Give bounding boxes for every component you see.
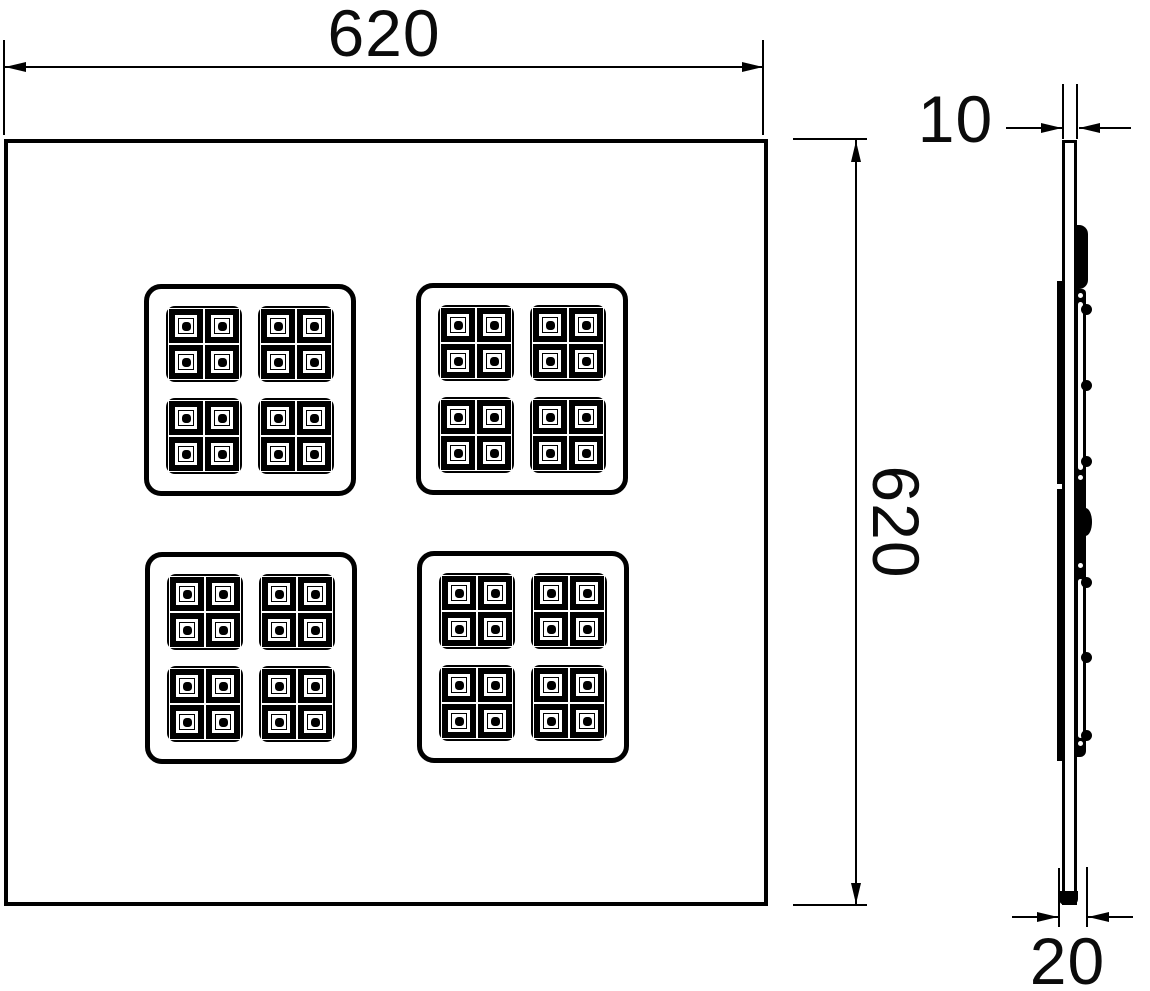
led-package <box>169 576 205 612</box>
dim-arrow-up <box>851 141 861 162</box>
led-chip <box>582 449 591 458</box>
led-package <box>532 307 568 343</box>
led-cell-frame <box>542 353 558 369</box>
led-cell-frame <box>543 585 559 601</box>
clip-bump <box>1081 730 1092 741</box>
led-board-layer-lower <box>1057 489 1063 761</box>
led-chip <box>582 321 591 330</box>
led-package <box>260 436 296 472</box>
led-package <box>533 575 569 611</box>
led-cell-frame <box>306 318 322 334</box>
led-cell <box>212 619 234 641</box>
led-cell-frame <box>450 353 466 369</box>
led-cell <box>267 407 289 429</box>
led-chip <box>491 681 500 690</box>
led-cluster <box>416 283 628 495</box>
led-cell-frame <box>178 318 194 334</box>
led-chip <box>547 589 556 598</box>
technical-drawing: 620 620 10 20 <box>0 0 1150 991</box>
led-module <box>166 398 242 474</box>
led-cell <box>448 618 470 640</box>
led-package <box>205 668 241 704</box>
led-cell <box>539 442 561 464</box>
led-package <box>205 704 241 740</box>
led-module <box>530 305 606 381</box>
led-cell <box>483 350 505 372</box>
led-cell-frame <box>178 446 194 462</box>
width-dimension-label: 620 <box>4 0 764 66</box>
led-package <box>261 612 297 648</box>
led-cell <box>175 351 197 373</box>
led-package <box>204 400 240 436</box>
led-cell <box>576 710 598 732</box>
led-package <box>569 667 605 703</box>
led-cell-frame <box>543 621 559 637</box>
led-cell-frame <box>578 317 594 333</box>
led-chip <box>547 717 556 726</box>
clip-bump <box>1081 652 1092 663</box>
led-cell-frame <box>487 621 503 637</box>
led-package <box>297 668 333 704</box>
led-package <box>533 703 569 739</box>
led-cell-frame <box>543 713 559 729</box>
led-chip <box>311 718 320 727</box>
led-package <box>261 668 297 704</box>
led-package <box>476 343 512 379</box>
led-cell <box>303 351 325 373</box>
led-cell-frame <box>486 317 502 333</box>
led-cell <box>212 583 234 605</box>
led-chip <box>310 450 319 459</box>
led-chip <box>454 321 463 330</box>
led-package <box>260 344 296 380</box>
led-chip <box>183 626 192 635</box>
led-package <box>440 435 476 471</box>
led-chip <box>582 413 591 422</box>
led-cell <box>447 350 469 372</box>
led-cell <box>176 675 198 697</box>
led-cell-frame <box>271 714 287 730</box>
led-cell <box>539 350 561 372</box>
depth-dimension-label: 20 <box>1020 928 1115 991</box>
led-cell <box>539 314 561 336</box>
led-cell <box>212 675 234 697</box>
led-package <box>533 611 569 647</box>
led-package <box>441 703 477 739</box>
led-cell-frame <box>178 354 194 370</box>
clip-bump <box>1081 304 1092 315</box>
led-cell <box>304 583 326 605</box>
led-cell-frame <box>307 714 323 730</box>
led-package <box>441 667 477 703</box>
led-chip <box>454 413 463 422</box>
led-module <box>258 306 334 382</box>
led-package <box>569 611 605 647</box>
led-package <box>568 343 604 379</box>
led-board-layer-upper <box>1057 281 1063 484</box>
led-cell-frame <box>306 354 322 370</box>
led-cell-frame <box>307 586 323 602</box>
led-cell-frame <box>578 409 594 425</box>
led-cell-frame <box>542 317 558 333</box>
led-cell <box>176 619 198 641</box>
led-cell <box>484 674 506 696</box>
led-chip <box>455 717 464 726</box>
led-cell-frame <box>451 621 467 637</box>
led-cell <box>267 351 289 373</box>
led-module <box>166 306 242 382</box>
led-module <box>258 398 334 474</box>
led-chip <box>219 682 228 691</box>
dim-arrow-down <box>851 883 861 904</box>
led-cluster <box>417 551 629 763</box>
led-cell <box>268 619 290 641</box>
led-cell <box>484 618 506 640</box>
led-cell <box>575 350 597 372</box>
led-chip <box>219 590 228 599</box>
led-cell <box>540 618 562 640</box>
led-chip <box>274 450 283 459</box>
led-chip <box>490 321 499 330</box>
led-module <box>438 397 514 473</box>
led-package <box>297 576 333 612</box>
led-chip <box>275 682 284 691</box>
led-chip <box>274 414 283 423</box>
led-package <box>476 399 512 435</box>
led-package <box>441 611 477 647</box>
led-cell <box>304 675 326 697</box>
led-cell-frame <box>307 622 323 638</box>
led-package <box>440 343 476 379</box>
led-chip <box>454 449 463 458</box>
led-package <box>569 575 605 611</box>
extension-line-thickness-left <box>1062 84 1064 139</box>
led-chip <box>218 450 227 459</box>
led-chip <box>455 625 464 634</box>
screw-hole <box>1078 741 1083 746</box>
led-cell-frame <box>306 446 322 462</box>
thickness-dimension-label: 10 <box>908 86 1003 152</box>
led-package <box>477 703 513 739</box>
led-chip <box>491 717 500 726</box>
led-package <box>568 435 604 471</box>
led-cell-frame <box>543 677 559 693</box>
led-package <box>296 400 332 436</box>
led-cell-frame <box>487 677 503 693</box>
led-chip <box>490 357 499 366</box>
led-cell <box>303 407 325 429</box>
led-package <box>204 344 240 380</box>
led-chip <box>182 414 191 423</box>
led-chip <box>218 322 227 331</box>
led-cell <box>175 315 197 337</box>
led-cell <box>176 583 198 605</box>
led-cell-frame <box>215 714 231 730</box>
led-chip <box>182 358 191 367</box>
led-cell <box>447 442 469 464</box>
led-cell-frame <box>578 445 594 461</box>
led-cell-frame <box>486 409 502 425</box>
led-module <box>259 574 335 650</box>
led-chip <box>219 626 228 635</box>
led-cell-frame <box>486 445 502 461</box>
led-cell <box>484 582 506 604</box>
led-cell-frame <box>215 622 231 638</box>
led-cell-frame <box>450 409 466 425</box>
led-cell <box>175 407 197 429</box>
led-module <box>530 397 606 473</box>
panel-foot <box>1059 891 1078 905</box>
led-chip <box>547 625 556 634</box>
extension-line-depth-left <box>1058 868 1060 927</box>
led-package <box>476 435 512 471</box>
led-cell <box>448 674 470 696</box>
led-package <box>568 399 604 435</box>
extension-line-thickness-right <box>1076 84 1078 139</box>
screw-hole <box>1078 475 1083 480</box>
led-cell <box>267 315 289 337</box>
led-package <box>440 307 476 343</box>
led-cell <box>211 315 233 337</box>
led-package <box>532 343 568 379</box>
led-cell <box>268 583 290 605</box>
led-cell-frame <box>215 586 231 602</box>
led-cell-frame <box>307 678 323 694</box>
led-chip <box>455 681 464 690</box>
led-chip <box>546 321 555 330</box>
led-package <box>532 435 568 471</box>
led-package <box>169 704 205 740</box>
led-package <box>441 575 477 611</box>
led-cell <box>540 582 562 604</box>
led-cell <box>268 711 290 733</box>
led-chip <box>490 449 499 458</box>
center-clip-bump <box>1079 508 1092 536</box>
led-cell <box>575 314 597 336</box>
led-chip <box>274 358 283 367</box>
led-cell <box>304 711 326 733</box>
led-package <box>296 436 332 472</box>
front-panel <box>4 139 768 906</box>
led-package <box>476 307 512 343</box>
led-cell <box>447 314 469 336</box>
led-module <box>167 574 243 650</box>
led-cell <box>212 711 234 733</box>
led-chip <box>183 590 192 599</box>
led-cell-frame <box>450 445 466 461</box>
led-cell <box>303 443 325 465</box>
led-package <box>260 308 296 344</box>
led-package <box>168 400 204 436</box>
led-package <box>260 400 296 436</box>
led-cell <box>483 442 505 464</box>
led-chip <box>491 625 500 634</box>
led-cell <box>447 406 469 428</box>
led-cell <box>175 443 197 465</box>
led-cell-frame <box>450 317 466 333</box>
led-chip <box>546 449 555 458</box>
led-chip <box>183 682 192 691</box>
led-cell <box>483 314 505 336</box>
led-cell-frame <box>487 585 503 601</box>
led-cell-frame <box>214 446 230 462</box>
led-package <box>205 576 241 612</box>
led-chip <box>583 717 592 726</box>
led-package <box>569 703 605 739</box>
led-chip <box>454 357 463 366</box>
led-package <box>169 668 205 704</box>
led-cell <box>448 710 470 732</box>
screw-hole <box>1078 293 1083 298</box>
led-chip <box>182 450 191 459</box>
led-chip <box>490 413 499 422</box>
led-cell-frame <box>579 713 595 729</box>
dim-arrow-left <box>1079 123 1100 133</box>
led-cell-frame <box>579 677 595 693</box>
led-package <box>205 612 241 648</box>
led-cell <box>576 618 598 640</box>
led-chip <box>274 322 283 331</box>
led-cell-frame <box>270 446 286 462</box>
led-cell-frame <box>271 622 287 638</box>
led-package <box>204 308 240 344</box>
led-cell <box>540 674 562 696</box>
led-chip <box>219 718 228 727</box>
led-cell-frame <box>542 409 558 425</box>
led-cell <box>576 674 598 696</box>
led-module <box>439 573 515 649</box>
dim-arrow-right <box>1041 123 1062 133</box>
led-cell-frame <box>451 677 467 693</box>
led-cell <box>540 710 562 732</box>
screw-hole <box>1078 563 1083 568</box>
led-chip <box>583 681 592 690</box>
led-cell-frame <box>270 354 286 370</box>
led-cell-frame <box>542 445 558 461</box>
clip-bump <box>1081 577 1092 588</box>
led-package <box>168 308 204 344</box>
led-chip <box>311 682 320 691</box>
led-package <box>261 704 297 740</box>
led-package <box>296 308 332 344</box>
clip-bump <box>1081 380 1092 391</box>
led-module <box>439 665 515 741</box>
led-package <box>477 611 513 647</box>
led-cell-frame <box>451 713 467 729</box>
led-cell <box>211 443 233 465</box>
led-chip <box>275 718 284 727</box>
led-cell-frame <box>179 586 195 602</box>
led-cell-frame <box>179 622 195 638</box>
led-cell <box>576 582 598 604</box>
led-chip <box>582 357 591 366</box>
led-chip <box>583 625 592 634</box>
led-chip <box>583 589 592 598</box>
led-chip <box>183 718 192 727</box>
led-chip <box>218 358 227 367</box>
led-cell <box>304 619 326 641</box>
led-package <box>261 576 297 612</box>
led-cell-frame <box>579 621 595 637</box>
led-cell <box>303 315 325 337</box>
led-cell <box>268 675 290 697</box>
led-package <box>568 307 604 343</box>
led-cell-frame <box>271 678 287 694</box>
led-cell <box>211 351 233 373</box>
led-chip <box>455 589 464 598</box>
led-module <box>531 573 607 649</box>
led-cell-frame <box>214 354 230 370</box>
led-cell <box>539 406 561 428</box>
led-module <box>167 666 243 742</box>
led-chip <box>311 590 320 599</box>
led-cell-frame <box>451 585 467 601</box>
clip-bump <box>1081 456 1092 467</box>
led-cell-frame <box>179 714 195 730</box>
led-package <box>169 612 205 648</box>
led-package <box>296 344 332 380</box>
led-cell-frame <box>270 410 286 426</box>
led-cluster <box>144 284 356 496</box>
led-package <box>477 575 513 611</box>
mounting-hook <box>1075 225 1088 289</box>
led-cell <box>575 442 597 464</box>
led-package <box>440 399 476 435</box>
led-package <box>297 612 333 648</box>
led-cell-frame <box>486 353 502 369</box>
led-cell-frame <box>214 410 230 426</box>
led-package <box>297 704 333 740</box>
led-cell <box>484 710 506 732</box>
led-cell <box>448 582 470 604</box>
led-package <box>168 344 204 380</box>
led-chip <box>182 322 191 331</box>
led-chip <box>546 413 555 422</box>
led-package <box>168 436 204 472</box>
led-package <box>532 399 568 435</box>
led-module <box>438 305 514 381</box>
led-cluster <box>145 552 357 764</box>
led-chip <box>310 414 319 423</box>
led-cell <box>211 407 233 429</box>
led-cell-frame <box>179 678 195 694</box>
led-module <box>259 666 335 742</box>
led-chip <box>218 414 227 423</box>
dim-arrow-right <box>1037 912 1058 922</box>
led-cell <box>267 443 289 465</box>
led-module <box>531 665 607 741</box>
led-chip <box>547 681 556 690</box>
dim-arrow-left <box>1088 912 1109 922</box>
led-chip <box>310 358 319 367</box>
led-cell-frame <box>214 318 230 334</box>
led-package <box>477 667 513 703</box>
height-dimension-label: 620 <box>863 465 929 578</box>
led-cell-frame <box>578 353 594 369</box>
led-chip <box>275 590 284 599</box>
led-chip <box>310 322 319 331</box>
led-cell-frame <box>306 410 322 426</box>
led-cell-frame <box>178 410 194 426</box>
led-chip <box>311 626 320 635</box>
led-cell <box>483 406 505 428</box>
led-cell-frame <box>487 713 503 729</box>
led-cell-frame <box>579 585 595 601</box>
led-cell <box>176 711 198 733</box>
led-cell-frame <box>215 678 231 694</box>
led-package <box>533 667 569 703</box>
led-chip <box>546 357 555 366</box>
